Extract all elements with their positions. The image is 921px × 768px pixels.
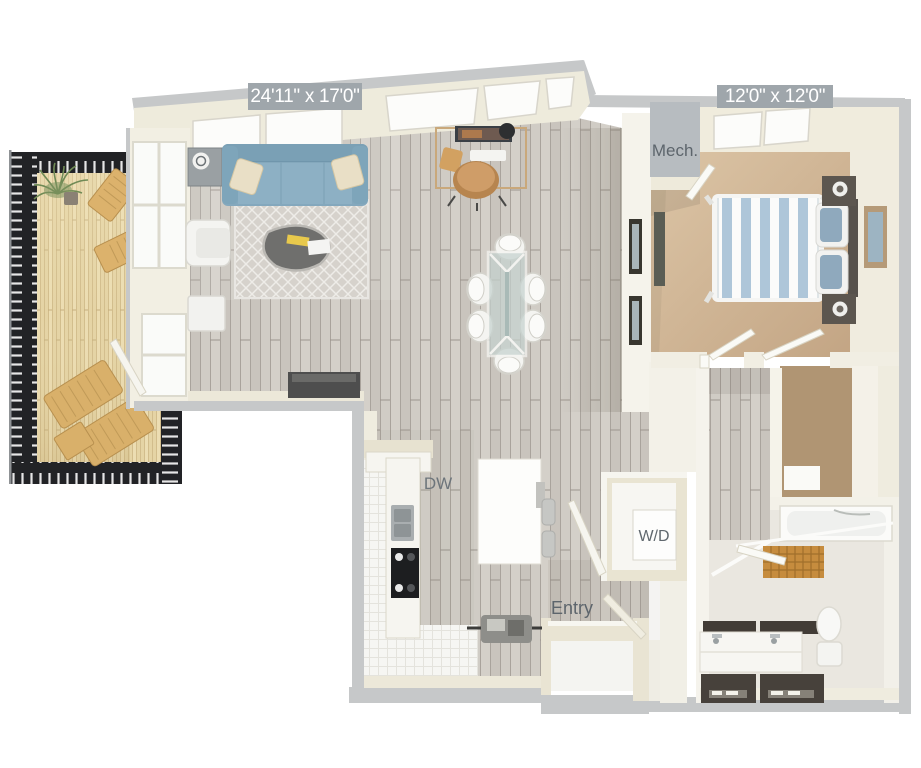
svg-text:Entry: Entry [551,598,593,618]
svg-text:Mech.: Mech. [652,141,698,160]
svg-text:12'0" x 12'0": 12'0" x 12'0" [725,86,825,107]
svg-text:DW: DW [424,474,452,493]
svg-text:24'11" x 17'0": 24'11" x 17'0" [250,86,359,107]
svg-text:W/D: W/D [638,528,669,545]
